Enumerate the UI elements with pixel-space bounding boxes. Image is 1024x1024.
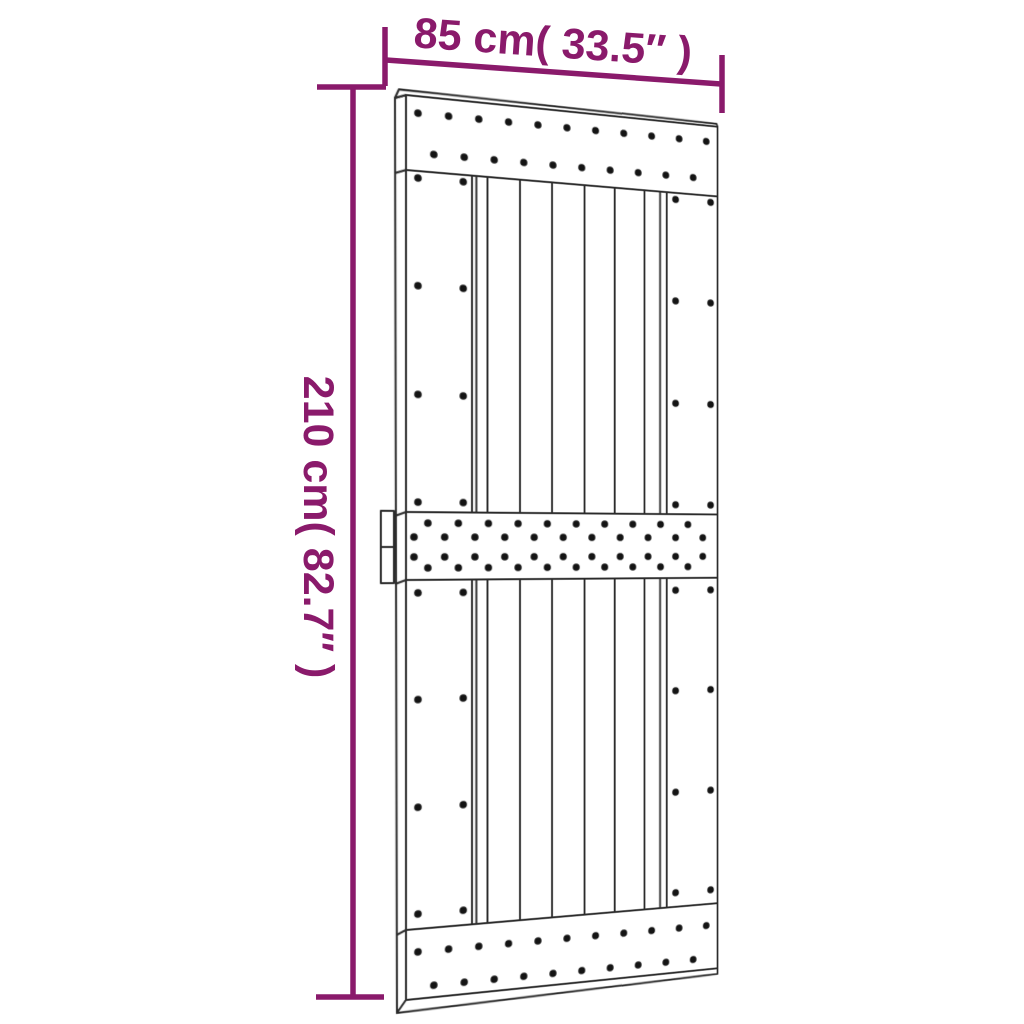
width-dimension-label: 85 cm( 33.5″ ) (412, 9, 693, 76)
door-handle (381, 511, 394, 583)
height-dimension-label: 210 cm( 82.7″ ) (294, 376, 342, 679)
width-dim-line (386, 60, 721, 84)
door-middle-rail (406, 512, 718, 580)
door-illustration (378, 80, 732, 1020)
door-drawing (378, 80, 732, 1020)
product-diagram-canvas: 85 cm( 33.5″ ) 210 cm( 82.7″ ) (0, 0, 1024, 1024)
door-left-side-face (395, 94, 406, 1013)
